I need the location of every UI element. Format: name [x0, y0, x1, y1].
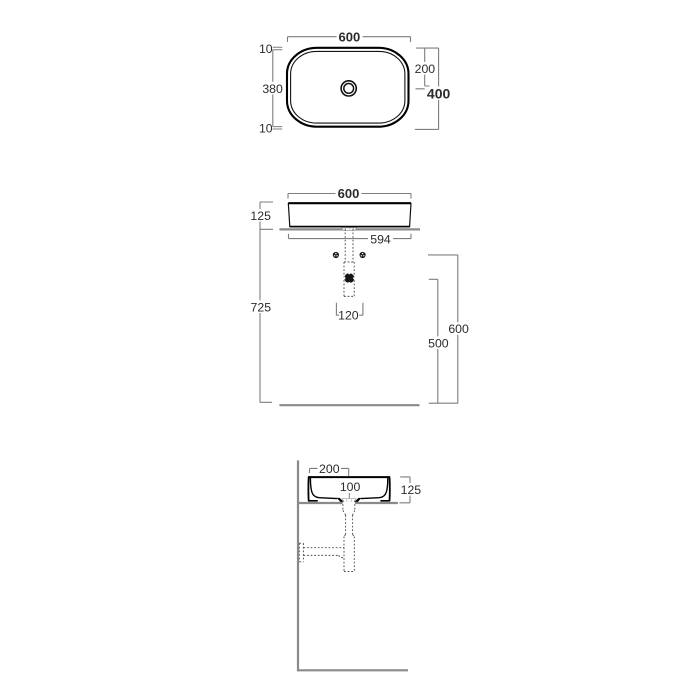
svg-text:380: 380 [262, 82, 283, 96]
svg-text:725: 725 [251, 300, 272, 314]
svg-text:100: 100 [340, 480, 361, 494]
svg-text:10: 10 [259, 42, 273, 56]
svg-text:600: 600 [339, 29, 361, 44]
svg-text:125: 125 [250, 209, 271, 223]
svg-text:594: 594 [370, 232, 391, 246]
svg-text:10: 10 [259, 122, 273, 136]
svg-text:500: 500 [428, 336, 449, 350]
svg-text:125: 125 [401, 483, 422, 497]
svg-text:200: 200 [415, 62, 436, 76]
svg-text:120: 120 [338, 309, 359, 323]
svg-text:600: 600 [448, 322, 469, 336]
svg-text:600: 600 [338, 186, 360, 201]
svg-text:200: 200 [319, 462, 340, 476]
svg-text:400: 400 [427, 85, 451, 101]
